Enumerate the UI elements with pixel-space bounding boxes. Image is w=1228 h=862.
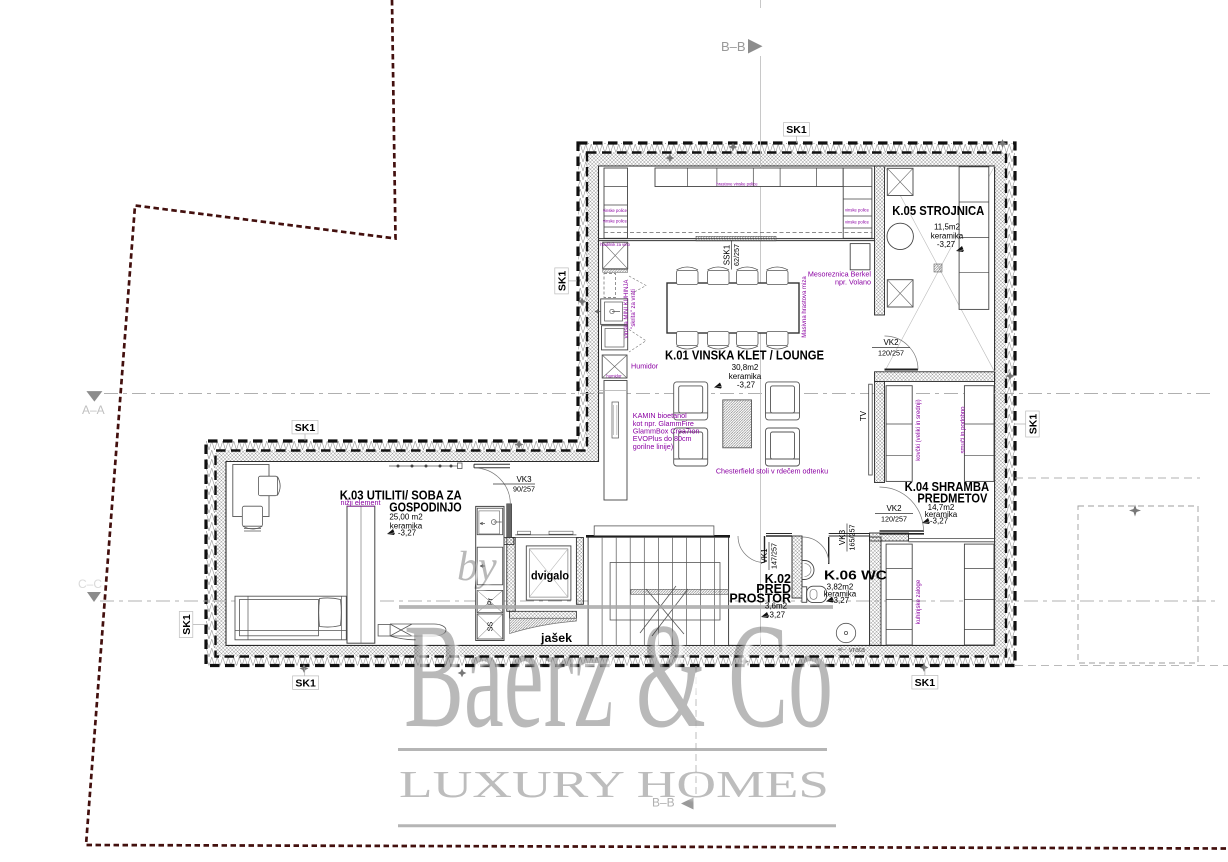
svg-text:vrata: vrata [849,645,865,654]
svg-text:VK3: VK3 [838,529,847,545]
svg-text:-3,27: -3,27 [398,529,417,538]
svg-text:SK1: SK1 [915,677,936,689]
svg-text:C–C: C–C [78,577,102,591]
svg-text:VK1: VK1 [760,548,769,564]
svg-text:dvigalo: dvigalo [531,571,569,583]
svg-text:LUXURY HOMES: LUXURY HOMES [399,764,829,806]
svg-text:vinska MINI KUHINJA: vinska MINI KUHINJA [624,280,630,339]
svg-text:vinske police: vinske police [845,208,870,213]
svg-text:25,00 m2: 25,00 m2 [389,513,423,522]
svg-text:K.01 VINSKA KLET / LOUNGE: K.01 VINSKA KLET / LOUNGE [665,348,824,363]
svg-text:kuhinjske zaloge: kuhinjske zaloge [916,579,922,624]
svg-text:vinske police: vinske police [603,219,628,224]
svg-text:-3,27: -3,27 [937,240,956,249]
svg-text:147/257: 147/257 [770,543,779,569]
svg-text:B–B: B–B [721,39,746,54]
svg-text:npr. Volano: npr. Volano [835,278,871,287]
svg-text:vinske police: vinske police [845,220,870,225]
svg-text:keramika: keramika [729,372,762,381]
svg-text:Masivna hrastova miza: Masivna hrastova miza [802,276,808,338]
svg-text:by: by [457,544,497,590]
svg-text:120/257: 120/257 [881,515,907,524]
svg-text:B–B: B–B [652,796,675,810]
svg-text:Pr: Pr [486,597,495,605]
svg-text:hladilnik za vino: hladilnik za vino [600,242,630,247]
svg-text:VK2: VK2 [886,504,902,513]
svg-text:SK1: SK1 [786,124,807,136]
svg-text:jašek: jašek [540,633,573,645]
svg-text:A–A: A–A [82,403,105,417]
svg-text:11,5m2: 11,5m2 [934,223,961,232]
svg-text:SK1: SK1 [1027,414,1039,435]
svg-text:vinske police: vinske police [603,208,628,213]
svg-text:90/257: 90/257 [513,485,535,494]
svg-text:kovčki (veliki in srednji): kovčki (veliki in srednji) [916,399,922,460]
svg-text:Chesterfield stoli v rdečem od: Chesterfield stoli v rdečem odtenku [716,467,828,476]
svg-text:gorilne linije): gorilne linije) [633,442,673,451]
svg-text:"skrita" za vrati: "skrita" za vrati [631,289,637,329]
svg-text:SK1: SK1 [295,677,316,689]
svg-text:K.05 STROJNICA: K.05 STROJNICA [892,204,984,218]
svg-text:VK2: VK2 [883,338,899,347]
svg-text:-3,27: -3,27 [767,611,786,620]
svg-text:SK1: SK1 [295,422,316,434]
svg-text:SK1: SK1 [181,614,193,635]
svg-text:keramika: keramika [931,231,964,240]
svg-text:-3,27: -3,27 [737,381,756,390]
svg-text:hrastove vinske police: hrastove vinske police [716,182,758,187]
svg-text:120/257: 120/257 [878,349,904,358]
svg-text:30,8m2: 30,8m2 [732,363,759,372]
svg-text:K.06 WC: K.06 WC [824,568,888,583]
svg-text:SK1: SK1 [556,271,568,292]
svg-text:SS: SS [486,622,495,632]
svg-text:VK3: VK3 [516,475,532,484]
svg-text:-3,27: -3,27 [930,517,949,526]
svg-text:3,6m2: 3,6m2 [765,602,788,611]
svg-text:165/257: 165/257 [848,525,857,551]
svg-text:humidor: humidor [606,374,622,379]
svg-text:TV: TV [859,410,868,421]
svg-text:SSK1: SSK1 [723,244,732,265]
svg-text:62/257: 62/257 [732,244,741,266]
svg-text:Humidor: Humidor [631,362,659,371]
svg-text:smuči in podobno: smuči in podobno [961,406,967,454]
svg-text:nižji element: nižji element [341,498,381,507]
